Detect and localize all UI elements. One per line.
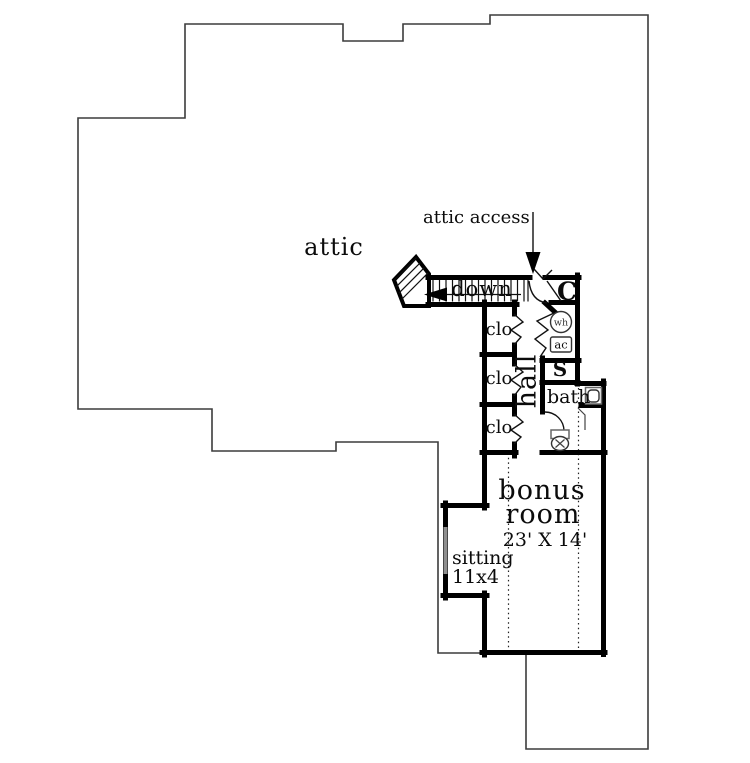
hall-label: hall: [512, 354, 543, 409]
sitting-dimensions: 11x4: [452, 566, 499, 588]
water-heater-label: wh: [554, 318, 568, 329]
stair-landing: [394, 257, 429, 306]
storage-label: S: [553, 357, 567, 381]
closet2-label: clo: [486, 368, 513, 389]
closet-c-label: C: [557, 277, 577, 306]
bonus-room-dimensions: 23' X 14': [503, 529, 587, 551]
clo1-zigzag: [511, 314, 523, 345]
floor-plan-page: attic attic access down clo clo clo hall…: [0, 0, 750, 763]
bonus-room-label-line2: room: [505, 499, 580, 530]
attic-access-arrow: [526, 252, 541, 274]
closet3-label: clo: [486, 417, 513, 438]
bath-door-arc: [545, 412, 564, 431]
bath-label: bath: [547, 386, 590, 408]
ac-unit-label: ac: [554, 338, 567, 352]
floor-plan-drawing: attic attic access down clo clo clo hall…: [0, 0, 750, 763]
clo3-zigzag: [511, 414, 523, 444]
closet1-label: clo: [486, 319, 513, 340]
stairs-down-label: down: [451, 277, 513, 301]
attic-access-label: attic access: [423, 207, 530, 228]
attic-label: attic: [304, 233, 364, 261]
attic-access-opening-arc: [529, 281, 547, 303]
interior-walls: [428, 275, 605, 655]
